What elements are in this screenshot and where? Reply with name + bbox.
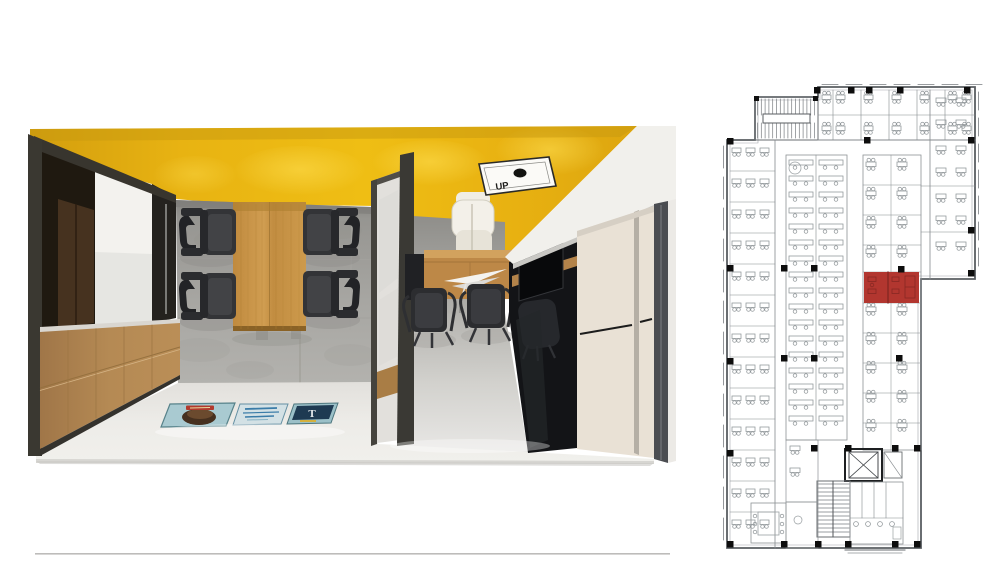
svg-text:T: T [308,408,316,420]
svg-text:UP: UP [495,180,510,193]
